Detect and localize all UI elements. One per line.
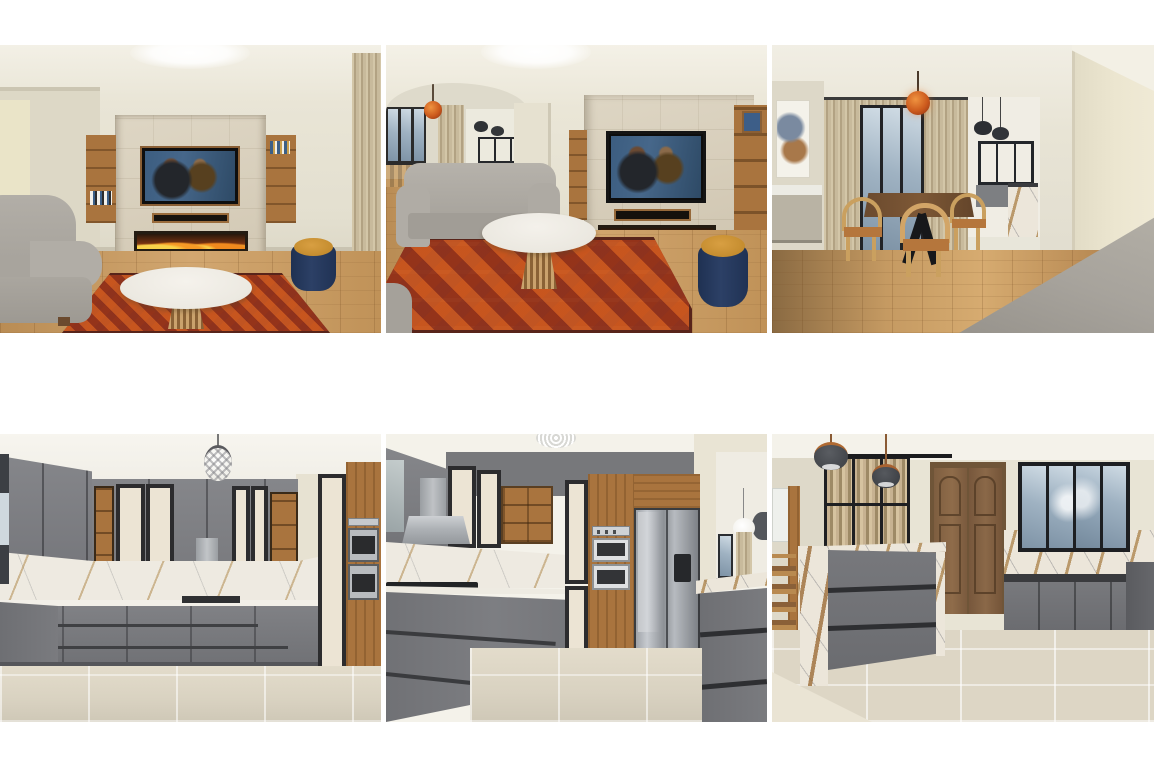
pendant-black-cord xyxy=(982,97,983,123)
dining-chair-legs xyxy=(954,228,984,250)
coffee-table-top xyxy=(482,213,596,253)
pouf-top xyxy=(294,238,333,256)
dining-chair-legs xyxy=(846,237,880,261)
range-hood xyxy=(402,516,470,544)
pendant-black-dome xyxy=(992,127,1009,140)
window-pane xyxy=(1022,466,1046,548)
render-living-room-front xyxy=(0,45,381,333)
render-grid-row-2 xyxy=(0,434,1154,722)
window-pane xyxy=(1049,466,1073,548)
shelf-column xyxy=(569,130,587,220)
tall-cream-door xyxy=(565,480,588,584)
pendant-cord xyxy=(885,434,887,466)
dining-curtain xyxy=(438,105,464,167)
pendant-crystal xyxy=(204,445,232,481)
globe-pendant-cord xyxy=(743,488,744,520)
fridge-split-line xyxy=(666,510,668,650)
books-left xyxy=(90,191,112,205)
sofa-seat xyxy=(0,277,92,323)
door-glass xyxy=(414,109,424,161)
dining-chair-seat xyxy=(903,239,949,251)
hood-chimney xyxy=(420,478,446,518)
living-opening xyxy=(716,452,767,584)
door-panel xyxy=(974,476,996,516)
cream-cabinet-door xyxy=(477,470,501,548)
pendant-orange xyxy=(424,101,442,119)
marble-waterfall-left xyxy=(800,546,828,686)
island-drawers-front xyxy=(828,550,940,670)
partition-mullion-h xyxy=(827,503,907,506)
pendant-black-cone xyxy=(474,121,488,132)
dining-chair-seat xyxy=(844,227,882,237)
tv-screen xyxy=(145,151,235,201)
tile-floor xyxy=(470,648,702,722)
tall-cream-door xyxy=(318,474,346,670)
dining-chair-seat xyxy=(952,219,986,228)
soundbar-niche xyxy=(614,209,691,221)
curtain-rod xyxy=(824,97,968,100)
counter-right xyxy=(1004,574,1146,582)
door-panel xyxy=(974,524,996,594)
kitchen-window xyxy=(978,141,1034,185)
screenshot-canvas xyxy=(0,0,1154,768)
pendant-black-dome xyxy=(974,121,992,135)
tv-screen xyxy=(611,136,701,198)
render-dining-room xyxy=(772,45,1154,333)
door-glass xyxy=(388,109,398,161)
door-glass-pane xyxy=(883,108,900,252)
render-kitchen-fridge xyxy=(386,434,767,722)
mirror-sliver xyxy=(386,460,404,532)
dining-chair xyxy=(900,203,950,243)
curtain-right xyxy=(352,53,381,263)
fireplace-flames xyxy=(137,234,245,249)
dining-glass-door xyxy=(386,107,426,165)
sofa-leg xyxy=(58,317,70,326)
ceiling-light xyxy=(536,434,576,448)
tile-floor xyxy=(0,666,381,722)
window-sliver-far-left xyxy=(0,454,9,584)
sofa-corner-foreground xyxy=(386,283,412,333)
pendant-black-cord xyxy=(1000,97,1001,129)
door-glass xyxy=(401,109,411,161)
oven-controls xyxy=(348,518,379,526)
coffee-table-top xyxy=(120,267,252,309)
render-grid-row-1 xyxy=(0,45,1154,333)
dining-chairs-glimpse xyxy=(772,554,796,630)
oven-window xyxy=(352,574,375,592)
pendant-black-cone xyxy=(491,126,504,136)
fridge-dispenser xyxy=(674,554,691,582)
drawer-groove xyxy=(58,646,288,649)
wood-open-shelf xyxy=(501,486,553,544)
render-kitchen-corner xyxy=(0,434,381,722)
render-kitchen-island xyxy=(772,434,1154,722)
oven-wood-column xyxy=(588,474,634,650)
pendant-dome-light xyxy=(878,482,894,487)
shelf-picture xyxy=(742,111,762,133)
window-pane xyxy=(1103,466,1126,548)
sideboard xyxy=(772,185,822,243)
pendant-dome-light xyxy=(822,464,840,470)
island-body xyxy=(700,588,767,722)
oven-window xyxy=(597,543,625,556)
curtain-sliver xyxy=(736,532,752,578)
dining-chair xyxy=(842,197,882,231)
oven-window xyxy=(352,536,375,554)
marble-end-right xyxy=(936,552,945,656)
wood-door-right xyxy=(969,468,1002,614)
drawer-groove xyxy=(58,624,258,627)
cooktop xyxy=(182,596,240,603)
window-pane xyxy=(1076,466,1100,548)
door-panel xyxy=(939,476,961,516)
dining-chair-legs xyxy=(906,251,946,277)
artwork xyxy=(776,100,810,178)
window-sliver xyxy=(718,534,733,578)
window xyxy=(1018,462,1130,552)
base-cabinets-right xyxy=(1004,582,1146,630)
render-living-room-angled xyxy=(386,45,767,333)
books-right xyxy=(270,141,290,154)
shelf-left xyxy=(86,135,116,223)
soundbar-niche xyxy=(152,213,229,223)
wood-panel-above-fridge xyxy=(634,474,700,508)
pendant-orange-cord xyxy=(432,83,434,103)
fridge-reflection xyxy=(638,512,660,632)
oven-controls xyxy=(592,526,630,536)
oven-window xyxy=(597,570,625,584)
pouf-top xyxy=(701,235,745,257)
pendant-orange xyxy=(906,91,930,115)
